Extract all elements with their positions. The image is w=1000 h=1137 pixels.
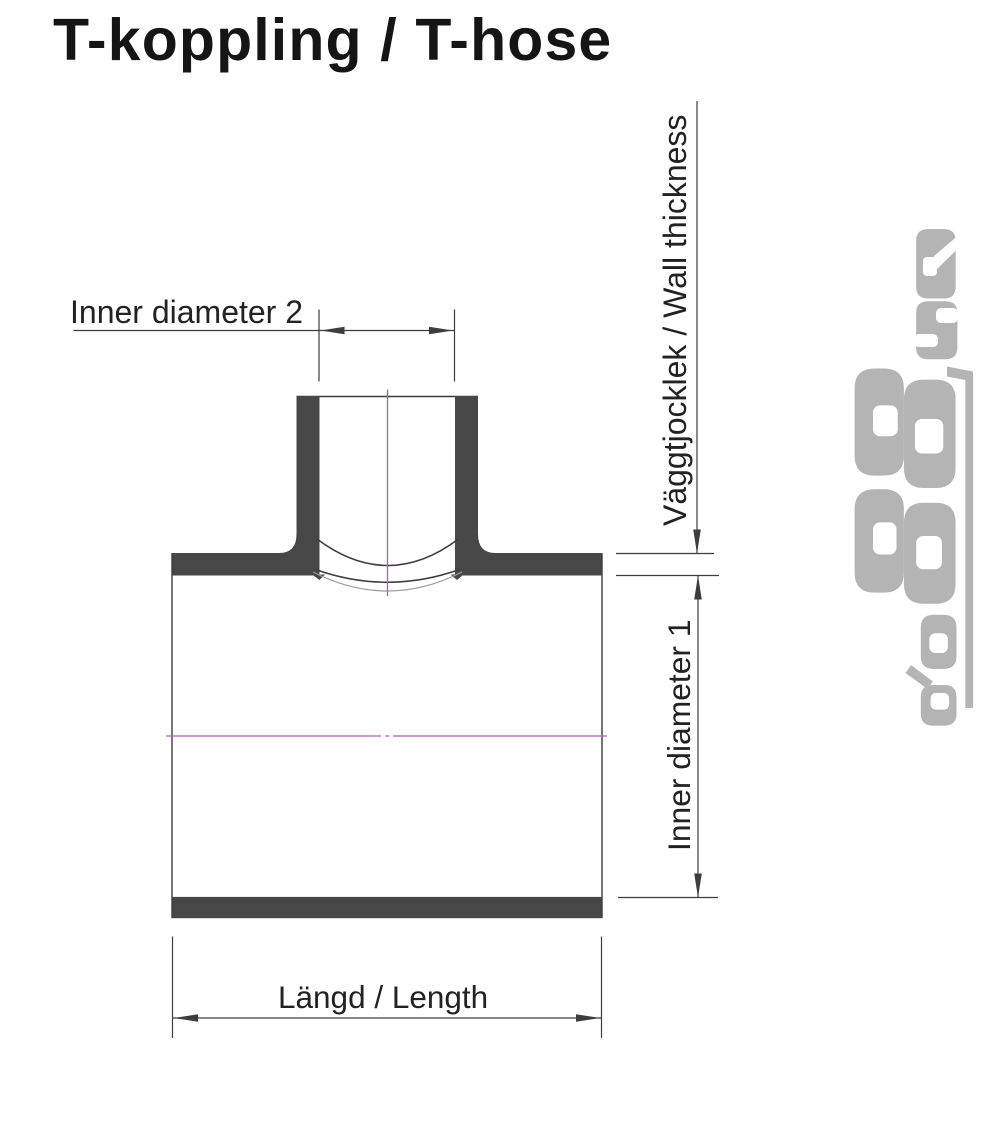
svg-text:T-koppling / T-hose: T-koppling / T-hose <box>53 7 612 73</box>
svg-text:Inner diameter 2: Inner diameter 2 <box>70 294 303 330</box>
svg-text:Väggtjocklek / Wall thickness: Väggtjocklek / Wall thickness <box>657 115 693 526</box>
svg-text:Längd / Length: Längd / Length <box>278 979 488 1015</box>
svg-text:Inner diameter 1: Inner diameter 1 <box>661 619 697 851</box>
